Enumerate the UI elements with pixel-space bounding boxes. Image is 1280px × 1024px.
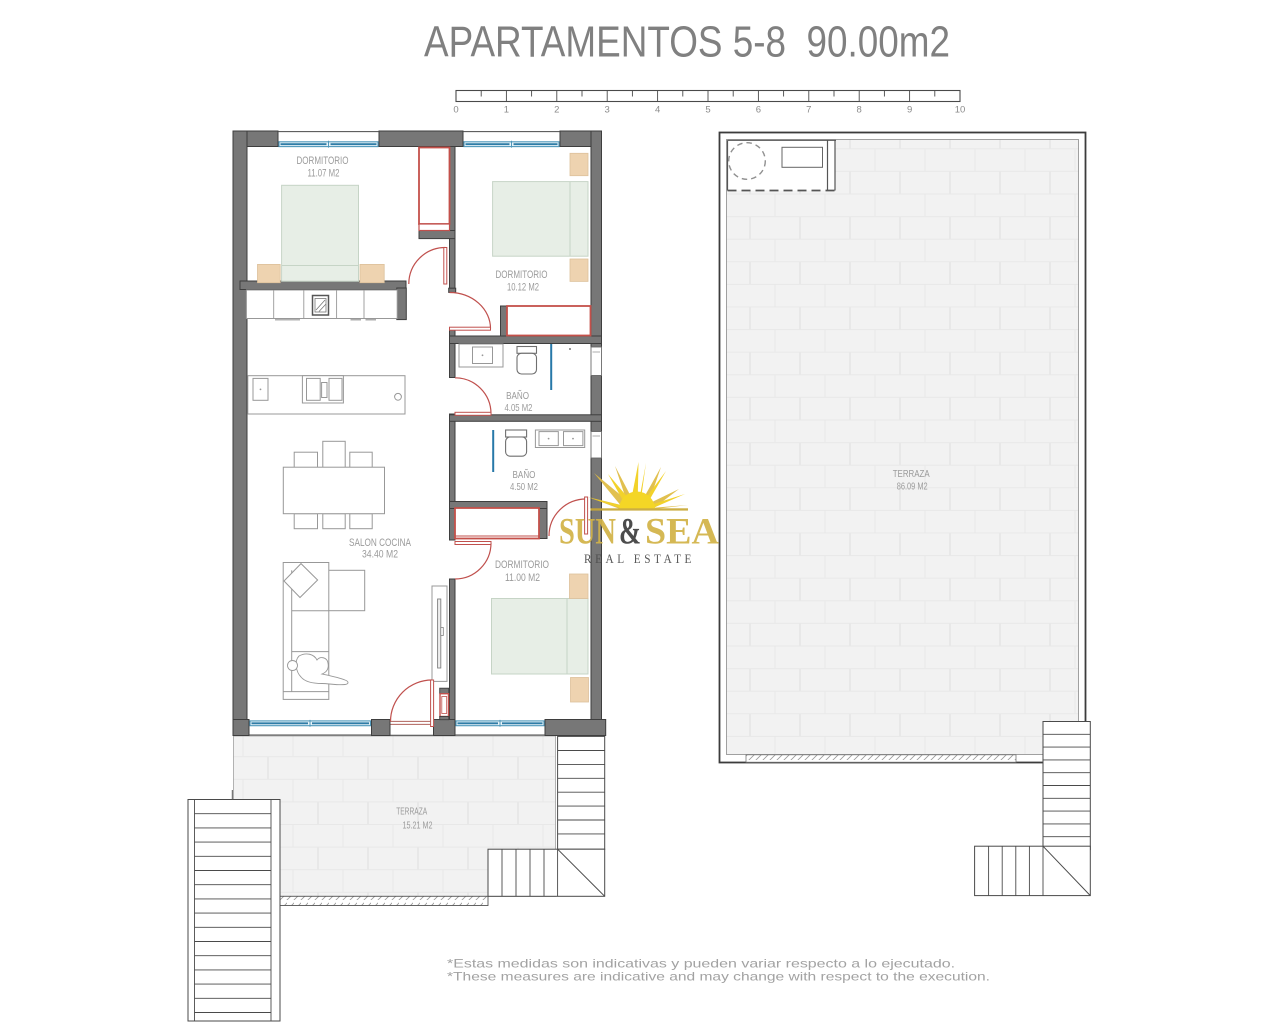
svg-text:7: 7 [806, 105, 811, 116]
svg-text:DORMITORIO: DORMITORIO [297, 155, 349, 167]
svg-text:4.05 M2: 4.05 M2 [505, 402, 533, 414]
svg-text:2: 2 [554, 105, 559, 116]
svg-text:86.09 M2: 86.09 M2 [897, 481, 928, 493]
svg-text:*These measures are indicative: *These measures are indicative and may c… [447, 970, 990, 984]
svg-text:&: & [619, 512, 641, 553]
svg-text:REAL ESTATE: REAL ESTATE [584, 552, 695, 566]
svg-text:10.12 M2: 10.12 M2 [507, 281, 539, 293]
svg-text:8: 8 [857, 105, 862, 116]
svg-text:*Estas medidas son indicativas: *Estas medidas son indicativas y pueden … [447, 956, 955, 970]
svg-text:5: 5 [705, 105, 710, 116]
svg-text:6: 6 [756, 105, 761, 116]
svg-text:4.50 M2: 4.50 M2 [510, 481, 538, 493]
svg-text:DORMITORIO: DORMITORIO [496, 269, 548, 281]
svg-text:34.40 M2: 34.40 M2 [362, 549, 398, 561]
svg-text:11.00 M2: 11.00 M2 [505, 572, 540, 584]
svg-text:SEA: SEA [645, 512, 719, 553]
svg-text:BAÑO: BAÑO [513, 468, 536, 481]
svg-text:4: 4 [655, 105, 660, 116]
svg-text:SUN: SUN [559, 512, 616, 553]
svg-text:9: 9 [907, 105, 912, 116]
svg-text:3: 3 [605, 105, 610, 116]
svg-text:APARTAMENTOS 5-8 90.00m2: APARTAMENTOS 5-8 90.00m2 [424, 19, 950, 67]
svg-text:TERRAZA: TERRAZA [396, 806, 427, 818]
svg-text:BAÑO: BAÑO [506, 389, 529, 402]
svg-text:10: 10 [955, 105, 966, 116]
svg-text:11.07 M2: 11.07 M2 [308, 168, 340, 180]
svg-text:1: 1 [504, 105, 509, 116]
svg-text:15.21 M2: 15.21 M2 [403, 820, 433, 832]
svg-text:DORMITORIO: DORMITORIO [495, 559, 549, 571]
svg-text:SALON COCINA: SALON COCINA [349, 537, 411, 549]
svg-text:TERRAZA: TERRAZA [893, 468, 930, 480]
svg-text:0: 0 [453, 105, 458, 116]
